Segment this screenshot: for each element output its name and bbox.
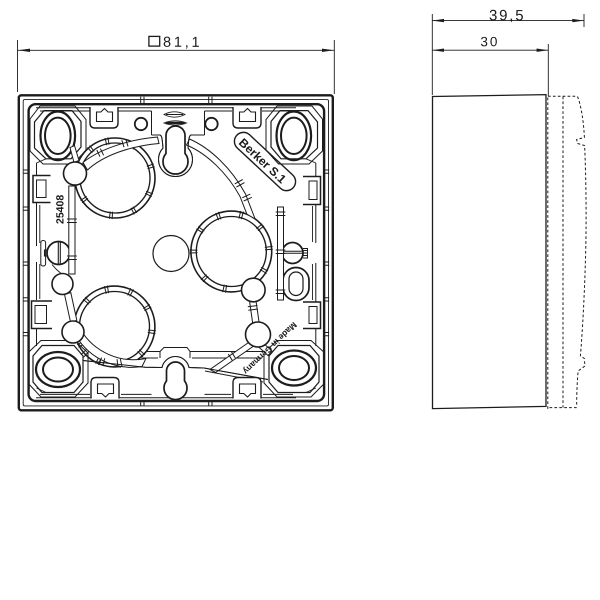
svg-text:25408: 25408: [54, 195, 66, 224]
svg-text:30: 30: [480, 34, 499, 49]
svg-text:39,5: 39,5: [489, 7, 525, 24]
svg-text:81,1: 81,1: [163, 35, 202, 51]
